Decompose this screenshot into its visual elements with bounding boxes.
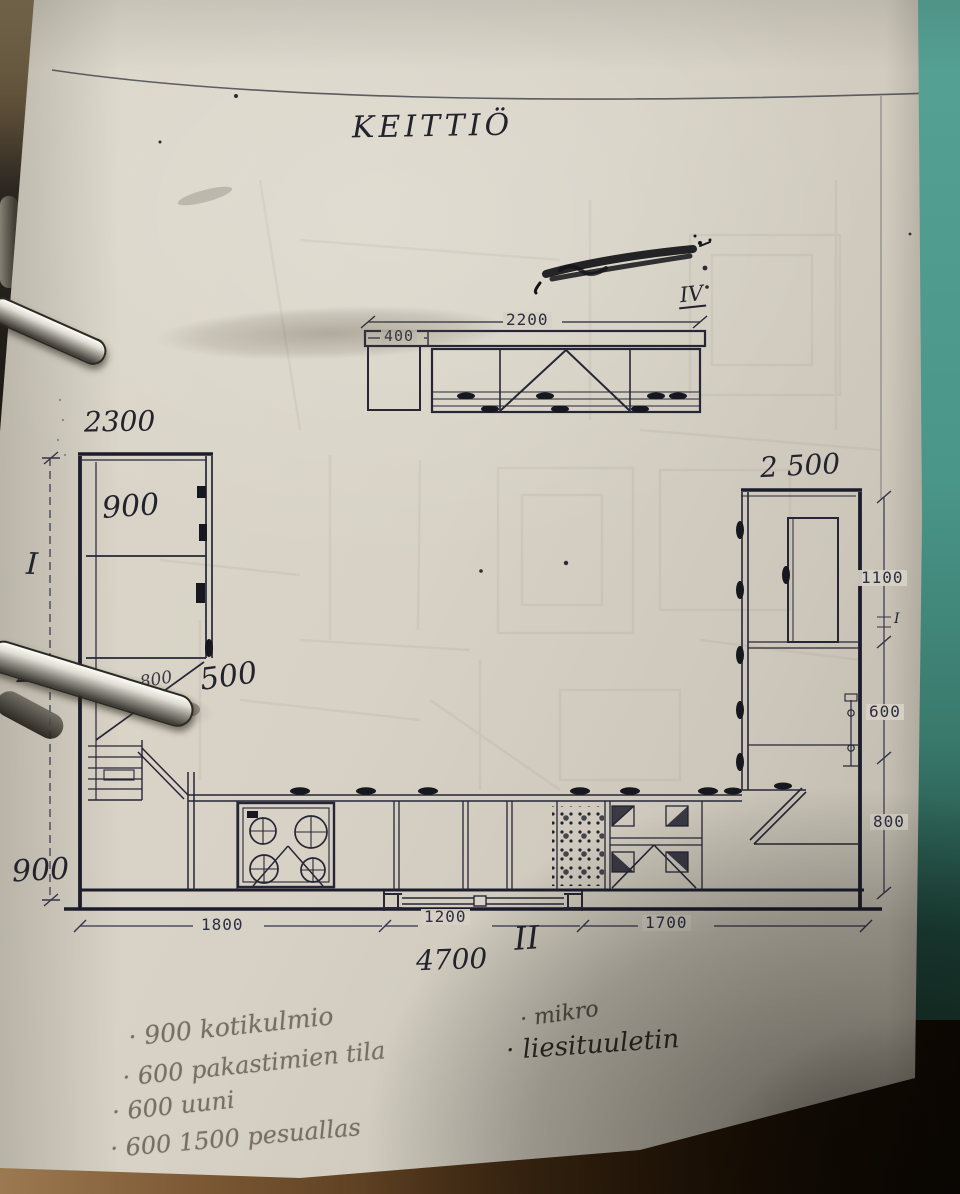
dim-900-label: 900 <box>11 855 70 888</box>
right-dim-1100-label: 1100 <box>858 570 907 586</box>
elevation-marker: IV <box>677 283 707 310</box>
dim-4700-label: 4700 <box>416 945 488 975</box>
stove-symbol <box>238 803 334 887</box>
kitchen-plan-drawing <box>0 0 960 1194</box>
dotted-drainer-area <box>552 806 604 886</box>
right-corner-unit <box>742 788 860 844</box>
right-dim-600-label: 600 <box>866 704 904 720</box>
cabinet-900-label: 900 <box>101 490 160 524</box>
sink-cabinet-symbol <box>610 806 702 888</box>
section-marker-bottom: II <box>513 921 540 955</box>
page-title: KEITTIÖ <box>352 111 514 144</box>
dim-2500-label: 2 500 <box>759 450 841 482</box>
ghost-bleed-through <box>160 180 880 790</box>
dim-2300-label: 2300 <box>84 407 156 436</box>
paper-sheet: 2200 400 1100 600 800 1800 1200 1700 KEI… <box>0 0 960 1194</box>
right-dim-800-label: 800 <box>870 814 908 830</box>
section-marker-left: I <box>25 550 38 580</box>
bottom-dim-1700-label: 1700 <box>642 915 691 931</box>
bottom-counter-run <box>188 783 792 891</box>
bottom-dim-1800-label: 1800 <box>198 917 247 933</box>
bottom-dim-1200-label: 1200 <box>421 909 470 925</box>
photo-scene: 2200 400 1100 600 800 1800 1200 1700 KEI… <box>0 0 960 1194</box>
right-cabinet-block <box>736 492 859 790</box>
section-marker-right: I <box>894 612 900 626</box>
